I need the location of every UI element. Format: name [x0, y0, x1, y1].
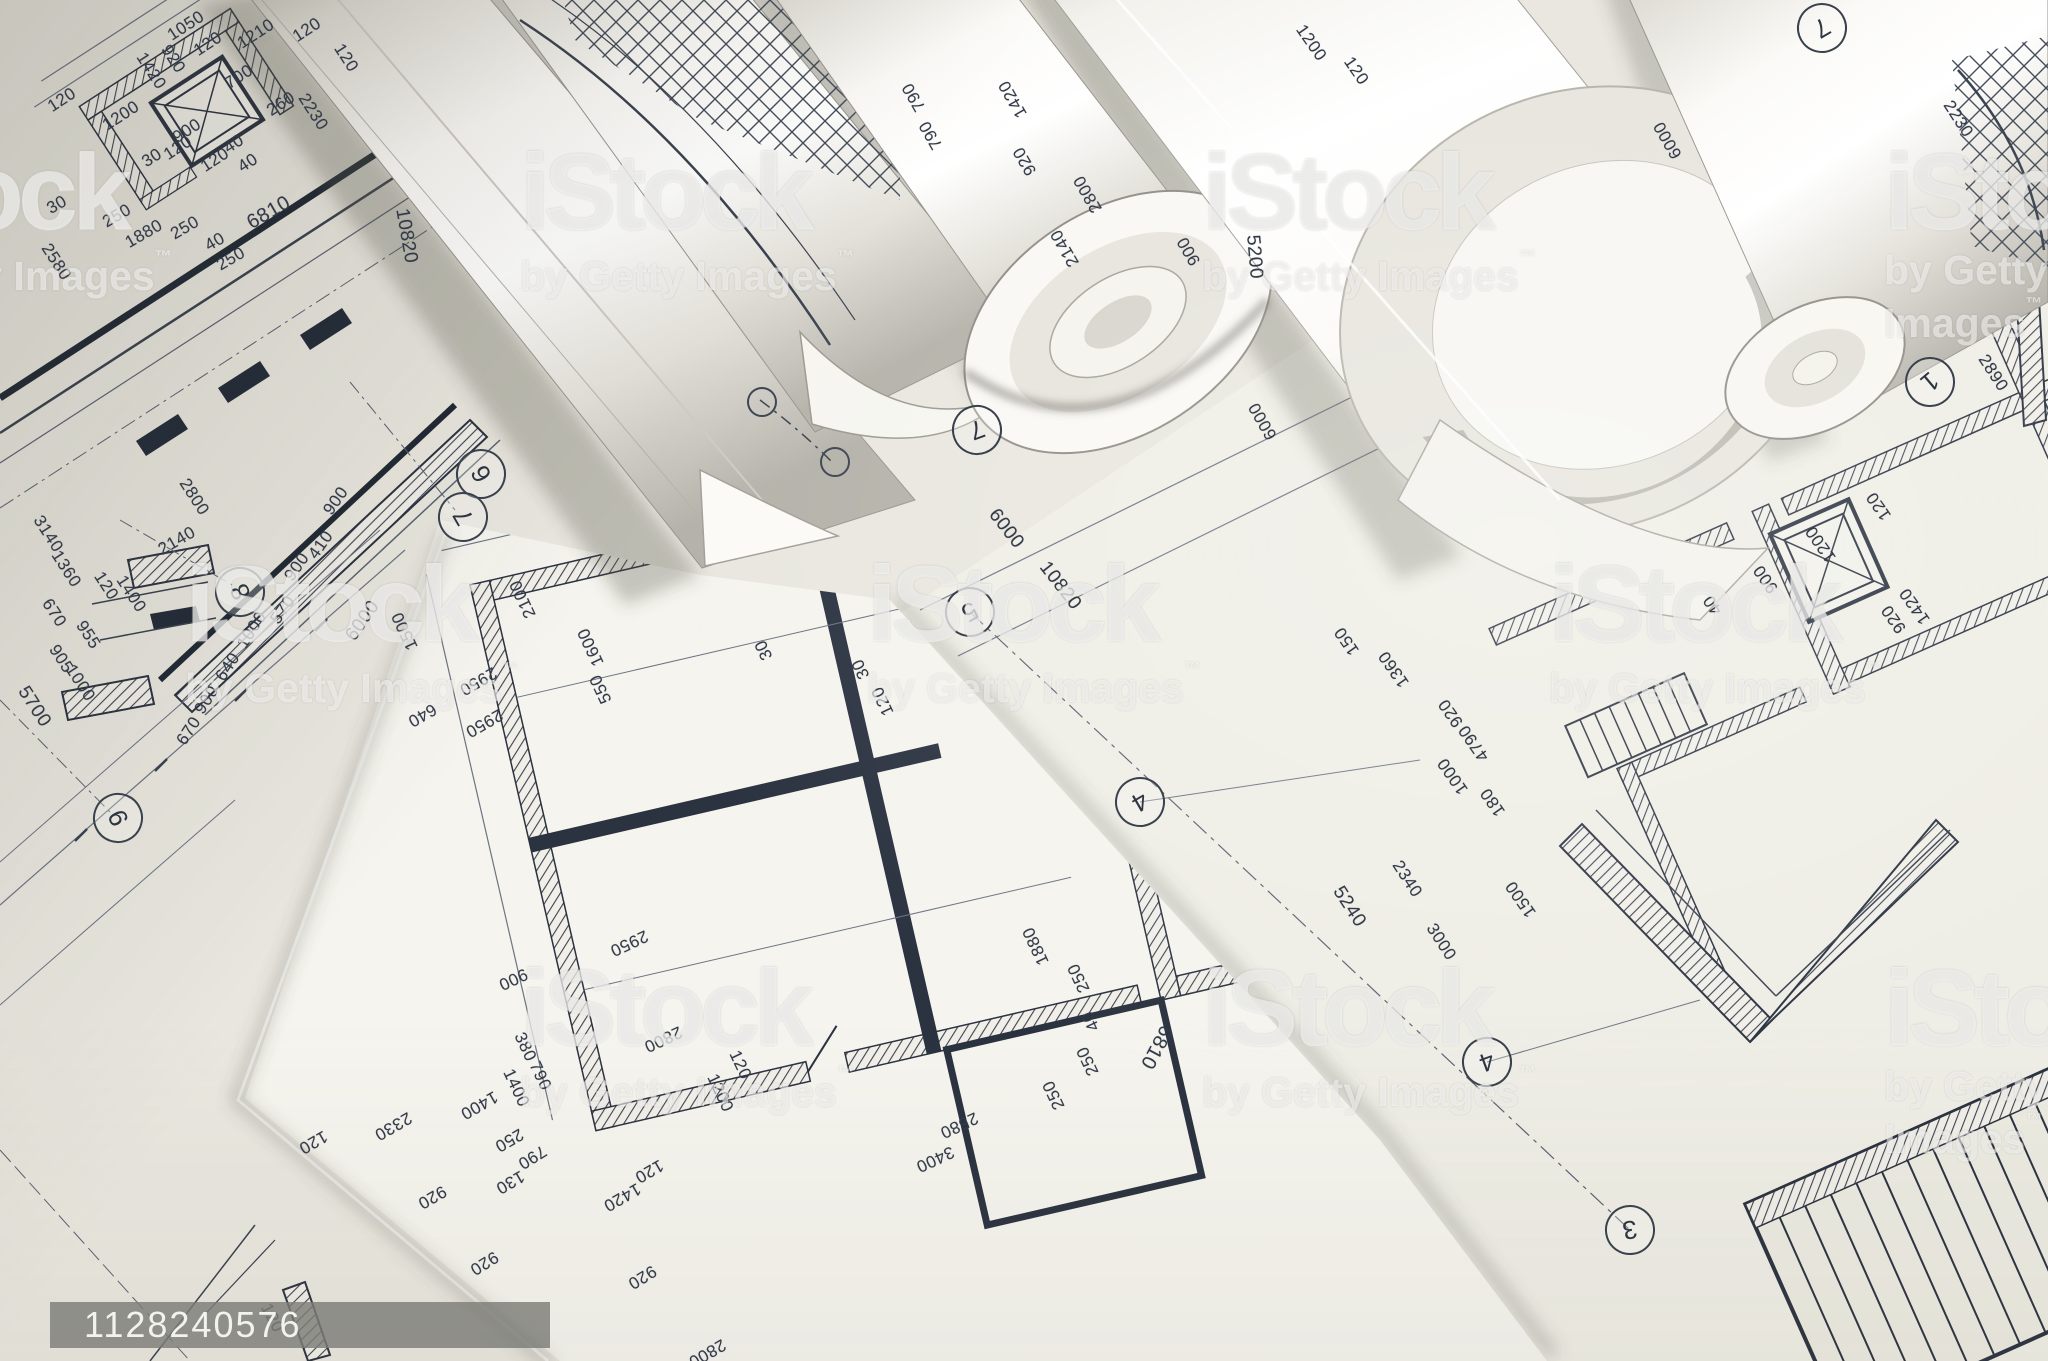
grid-bubble: 9	[85, 785, 151, 851]
grid-bubble: 8	[207, 559, 273, 625]
grid-bubble: 7	[945, 398, 1009, 462]
grid-bubble: 4	[1106, 768, 1174, 836]
grid-bubble: 5	[936, 578, 1004, 646]
stock-photo-rolled-blueprints: 1050121012012070026012001201420920223012…	[0, 0, 2048, 1361]
grid-bubble: 7	[1788, 0, 1856, 62]
image-id: 1128240576	[50, 1304, 302, 1346]
watermark-id-badge: 1128240576	[50, 1302, 550, 1348]
grid-bubble: 4	[1455, 1030, 1519, 1094]
grid-bubble: 1	[1895, 347, 1965, 417]
grid-bubble: 3	[1601, 1201, 1659, 1259]
grid-bubbles-layer: 67895443177	[0, 0, 2048, 1361]
